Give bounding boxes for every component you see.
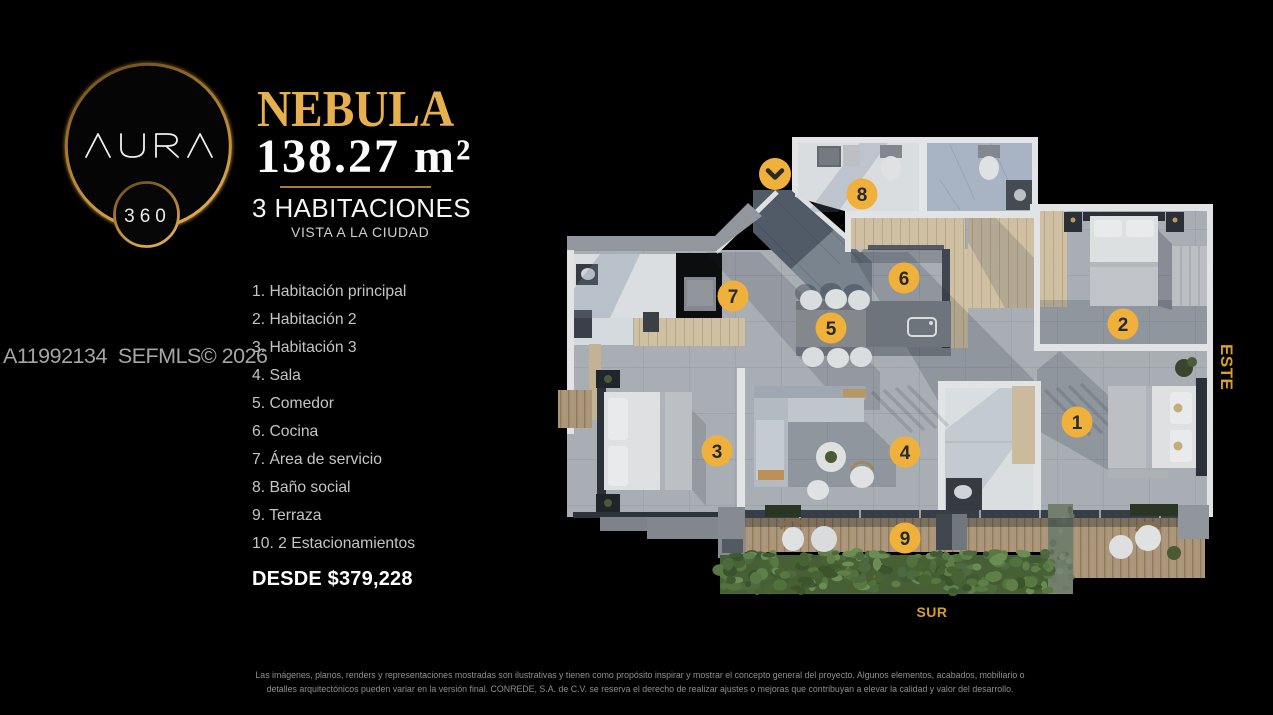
svg-text:8: 8 <box>857 185 868 206</box>
svg-text:5: 5 <box>826 319 837 340</box>
svg-text:6: 6 <box>899 269 910 290</box>
svg-text:1: 1 <box>1072 413 1083 434</box>
svg-text:SUR: SUR <box>916 604 947 620</box>
svg-text:ESTE: ESTE <box>1217 344 1236 390</box>
svg-text:4: 4 <box>900 443 911 464</box>
svg-text:2: 2 <box>1118 315 1129 336</box>
svg-text:360: 360 <box>124 206 171 227</box>
svg-text:9: 9 <box>900 529 911 550</box>
svg-text:7: 7 <box>728 287 739 308</box>
svg-text:3: 3 <box>712 442 723 463</box>
